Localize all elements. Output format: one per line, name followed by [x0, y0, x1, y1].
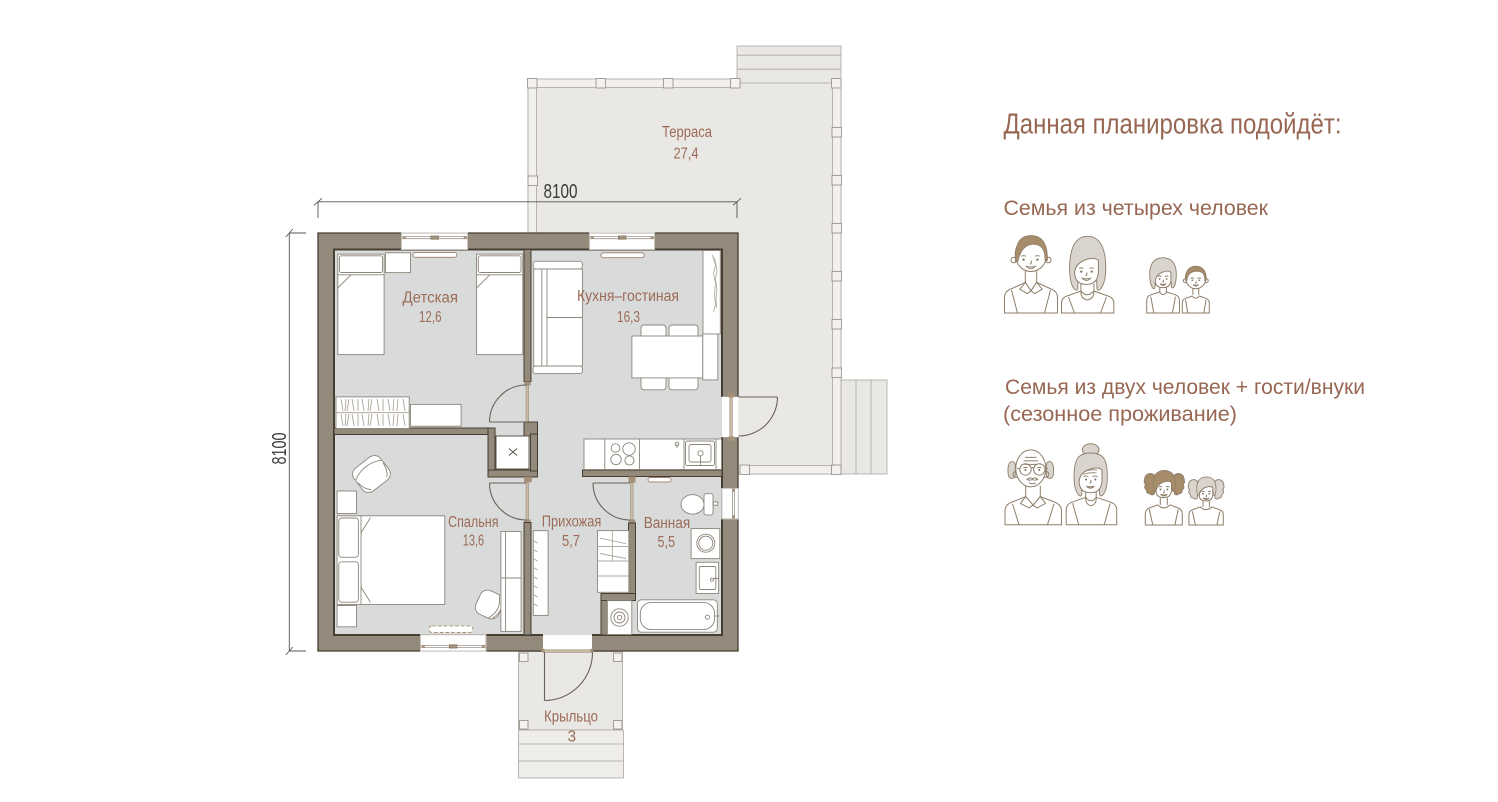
svg-text:8100: 8100 [269, 433, 291, 465]
svg-text:12,6: 12,6 [419, 309, 442, 326]
svg-text:Терраса: Терраса [662, 124, 712, 141]
svg-text:27,4: 27,4 [674, 146, 699, 163]
svg-text:Семья из двух человек + гости/: Семья из двух человек + гости/внуки [1005, 375, 1365, 399]
svg-text:Данная планировка подойдёт:: Данная планировка подойдёт: [1004, 109, 1342, 141]
svg-text:8100: 8100 [544, 181, 578, 203]
svg-text:Семья из четырех человек: Семья из четырех человек [1004, 196, 1269, 220]
svg-text:3: 3 [568, 729, 577, 746]
svg-text:Прихожая: Прихожая [542, 514, 602, 531]
svg-text:5,7: 5,7 [562, 533, 580, 550]
svg-text:Спальня: Спальня [448, 514, 499, 531]
svg-text:Крыльцо: Крыльцо [544, 709, 598, 726]
svg-text:Кухня–гостиная: Кухня–гостиная [577, 288, 679, 305]
svg-text:(сезонное проживание): (сезонное проживание) [1003, 402, 1237, 426]
svg-text:Детская: Детская [403, 290, 459, 307]
svg-text:5,5: 5,5 [658, 534, 676, 551]
svg-text:13,6: 13,6 [463, 533, 485, 550]
svg-text:16,3: 16,3 [617, 309, 640, 326]
svg-text:Ванная: Ванная [644, 515, 691, 532]
